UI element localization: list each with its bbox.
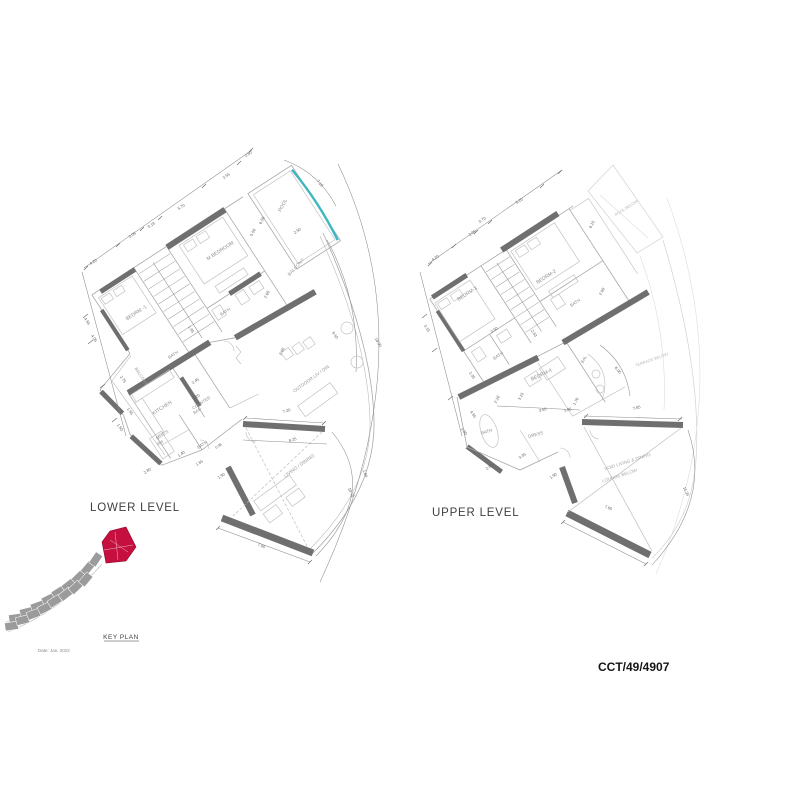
- room-label: BATH: [480, 428, 492, 436]
- dim-label: 9.50: [331, 331, 340, 341]
- room-label: BEDRM-3: [456, 285, 478, 302]
- dim-label: 6.15: [588, 219, 596, 229]
- date-label: Date: Jan. 2022: [38, 648, 70, 653]
- dim-label: 7.60: [257, 542, 267, 550]
- dim-label: 3.15: [423, 324, 432, 334]
- dim-label: 1.55: [126, 407, 135, 417]
- dim-label: 4.55: [83, 317, 92, 327]
- room-label: BEDRM-4: [530, 368, 553, 383]
- dim-label: 1.50: [116, 423, 125, 433]
- dim-label: 0.98: [214, 443, 222, 450]
- lower-room-block: [54, 165, 395, 479]
- dim-label: 2.60: [244, 149, 254, 158]
- dim-label: 7.18: [316, 178, 325, 188]
- key-plan-units: [5, 552, 103, 631]
- dim-label: 1.65: [195, 458, 205, 467]
- room-label: POOL BELOW: [614, 198, 639, 217]
- room-label: BAL: [580, 354, 588, 364]
- room-label: KITCHEN: [152, 399, 174, 416]
- room-label: POOL: [277, 198, 289, 213]
- lower-furniture: [70, 217, 315, 459]
- dim-label: 3.35: [518, 451, 528, 460]
- dim-label: 4.20: [89, 257, 99, 266]
- dim-label: 0.70: [478, 215, 488, 224]
- upper-room-block: [388, 195, 688, 480]
- key-plan-title: KEY PLAN: [103, 634, 139, 641]
- upper-level-plan: BEDRM-2BEDRM-3BATHBATHBATHBALBEDRM-4DRES…: [388, 165, 700, 574]
- dim-label: 2.80: [143, 466, 153, 475]
- dim-label: 2.75: [119, 375, 128, 385]
- upper-level-title: UPPER LEVEL: [432, 507, 519, 519]
- dim-label: 1.04: [362, 469, 370, 479]
- dim-label: 1.70: [572, 396, 580, 406]
- room-label: DRESS: [528, 430, 544, 439]
- dim-label: 7.20: [282, 407, 292, 414]
- room-label: LIVING / DINING: [283, 453, 316, 479]
- room-label: BATH: [569, 298, 581, 308]
- dim-label: 7.65: [604, 504, 614, 512]
- dim-label: 2.63: [530, 329, 539, 339]
- dim-label: 1.50: [460, 427, 469, 437]
- dim-label: 1.90: [549, 471, 559, 480]
- dim-label: 2.45: [191, 376, 201, 385]
- dim-label: 4.20: [431, 253, 441, 262]
- dim-label: 2.05: [278, 346, 286, 356]
- lower-level-title: LOWER LEVEL: [90, 502, 180, 514]
- room-label: BATH: [196, 440, 208, 450]
- dim-label: 2.60: [598, 286, 606, 296]
- room-label: OUTDOOR LIV / DIN: [292, 364, 330, 394]
- dim-label: 7.85: [632, 404, 642, 411]
- dim-label: 4.05: [90, 334, 99, 344]
- dim-label: 2.50: [293, 226, 303, 235]
- key-plan: KEY PLAN Date: Jan. 2022: [5, 527, 139, 653]
- dim-label: 8.25: [288, 436, 298, 443]
- room-label: BATH: [492, 351, 504, 361]
- dim-label: 6.05: [614, 365, 623, 375]
- lower-wing: [82, 148, 379, 582]
- dim-label: 3.15: [517, 391, 525, 401]
- dim-label: 3.65: [538, 406, 548, 413]
- dim-label: 2.05: [468, 228, 478, 237]
- dim-label: 2.55: [222, 171, 232, 180]
- dim-label: 2.18: [493, 394, 501, 404]
- dim-label: 5.50: [249, 227, 257, 237]
- key-plan-highlighted-unit: [102, 527, 136, 563]
- dim-label: 18.90: [374, 337, 384, 349]
- dim-label: 1.85: [563, 406, 573, 413]
- dim-label: 0.18: [147, 220, 157, 229]
- dim-label: 3.60: [490, 325, 500, 334]
- lower-level-plan: M BEDROOMBEDRM -1BATHBATHBATHKITCHENCOUN…: [54, 148, 395, 582]
- dim-label: 1.90: [217, 471, 227, 480]
- upper-annotations: BEDRM-2BEDRM-3BATHBATHBATHBALBEDRM-4DRES…: [423, 196, 691, 511]
- room-label: BEDRM -1: [125, 304, 148, 322]
- dim-label: 2.65: [263, 289, 271, 299]
- drawing-sheet: M BEDROOMBEDRM -1BATHBATHBATHKITCHENCOUN…: [0, 0, 800, 800]
- floor-plan-canvas: M BEDROOMBEDRM -1BATHBATHBATHKITCHENCOUN…: [0, 0, 800, 800]
- room-label: VOID LIVING & DINING: [604, 452, 652, 472]
- room-label: BATH: [167, 350, 179, 360]
- room-label: MAID'S: [155, 429, 170, 441]
- upper-furniture: [434, 223, 624, 409]
- dim-label: 5.70: [177, 202, 187, 211]
- dim-label: 2.35: [468, 371, 477, 381]
- drawing-number: CCT/49/4907: [598, 660, 670, 674]
- dim-label: 4.55: [469, 410, 478, 420]
- room-label: M BEDROOM: [206, 240, 236, 262]
- lower-stairs: [138, 252, 218, 348]
